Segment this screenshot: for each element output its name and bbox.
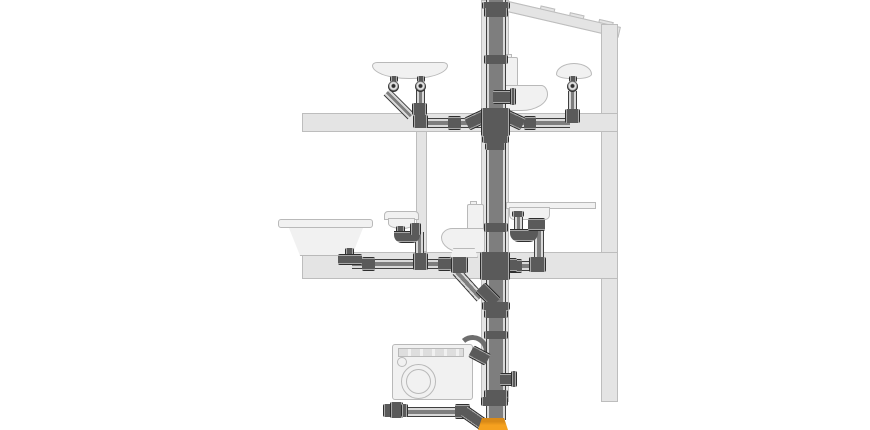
stack-bell-fitting — [484, 8, 508, 17]
stack-coupling — [482, 136, 509, 143]
elbow-fitting — [451, 257, 468, 273]
upper-stack-junction — [481, 108, 510, 136]
pipe-coupling — [448, 116, 461, 130]
branch-tee-fitting — [413, 253, 428, 270]
lower-stack-junction — [480, 252, 510, 280]
pipe-coupling — [438, 257, 451, 271]
stack-bell-fitting — [482, 302, 510, 310]
stack-coupling — [484, 310, 508, 318]
stack-coupling — [485, 143, 506, 150]
ball-joint — [388, 81, 399, 92]
drainage-diagram — [0, 0, 870, 430]
sink-tail-coupling — [512, 211, 524, 217]
elbow-fitting — [529, 257, 546, 272]
elbow-fitting — [413, 115, 428, 128]
pipe-coupling — [362, 257, 375, 271]
underground-transition-fitting — [478, 418, 508, 430]
toilet-flush-button — [470, 201, 477, 205]
trap-riser-elbow — [410, 223, 421, 235]
toilet-branch-flange — [510, 88, 516, 105]
pipe-ring — [401, 404, 408, 417]
washing-machine-knob — [397, 357, 407, 367]
y-fitting — [412, 103, 427, 115]
roof-batten — [569, 12, 585, 19]
ball-joint — [567, 81, 578, 92]
right-wall — [601, 24, 618, 402]
washing-machine-panel — [398, 348, 464, 357]
stack-coupling — [484, 223, 508, 232]
elbow-fitting — [528, 218, 545, 231]
cleanout-cap-flange — [511, 371, 517, 387]
stack-bell-fitting — [481, 397, 508, 406]
underground-drain-pipe — [406, 407, 458, 417]
bathtub-rim — [278, 219, 373, 228]
ball-joint — [415, 81, 426, 92]
tub-trap-fitting — [338, 254, 362, 265]
stack-coupling — [484, 331, 508, 339]
pipe-coupling — [524, 116, 536, 130]
washing-machine-door-inner — [406, 369, 431, 394]
upper-washbasin — [372, 62, 448, 79]
roof-batten — [540, 5, 556, 12]
elbow-fitting — [565, 109, 580, 123]
stack-coupling — [484, 55, 508, 64]
